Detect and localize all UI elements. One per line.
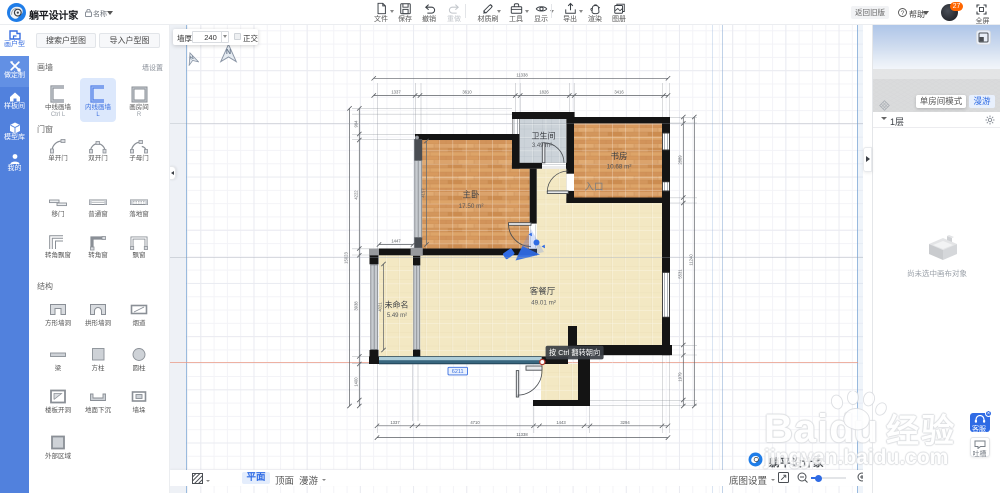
svg-text:4157: 4157 (421, 188, 426, 198)
svg-text:1443: 1443 (556, 420, 566, 425)
svg-text:5531: 5531 (677, 269, 682, 279)
svg-text:1979: 1979 (677, 372, 682, 382)
svg-text:主卧: 主卧 (462, 190, 480, 200)
svg-text:入口: 入口 (584, 182, 603, 193)
svg-text:4021: 4021 (378, 302, 383, 312)
svg-text:书房: 书房 (610, 151, 627, 161)
svg-text:客餐厅: 客餐厅 (530, 286, 556, 296)
svg-text:11338: 11338 (516, 73, 528, 78)
svg-text:11338: 11338 (516, 432, 528, 437)
svg-text:1826: 1826 (539, 90, 549, 95)
svg-text:3938: 3938 (353, 301, 358, 311)
svg-text:4222: 4222 (353, 190, 358, 200)
svg-text:卫生间: 卫生间 (532, 131, 556, 141)
svg-text:3.49 m²: 3.49 m² (532, 143, 552, 149)
svg-text:?: ? (901, 10, 905, 17)
svg-text:1337: 1337 (391, 90, 401, 95)
svg-text:3610: 3610 (462, 90, 472, 95)
svg-text:1400: 1400 (353, 377, 358, 387)
svg-text:6211: 6211 (452, 369, 464, 375)
svg-text:4710: 4710 (470, 420, 480, 425)
svg-text:15023: 15023 (344, 252, 349, 264)
svg-text:10.68 m²: 10.68 m² (607, 164, 632, 171)
svg-text:3416: 3416 (614, 90, 624, 95)
svg-text:3294: 3294 (620, 420, 630, 425)
svg-text:11240: 11240 (688, 254, 693, 266)
svg-text:49.01 m²: 49.01 m² (531, 300, 556, 307)
svg-text:按 Ctrl 翻转朝向: 按 Ctrl 翻转朝向 (549, 348, 600, 357)
svg-text:1447: 1447 (391, 239, 401, 244)
svg-text:5.49 m²: 5.49 m² (387, 313, 407, 319)
svg-text:未命名: 未命名 (385, 300, 409, 310)
svg-text:17.50 m²: 17.50 m² (459, 203, 484, 210)
svg-text:1337: 1337 (390, 420, 400, 425)
svg-text:2889: 2889 (677, 155, 682, 165)
